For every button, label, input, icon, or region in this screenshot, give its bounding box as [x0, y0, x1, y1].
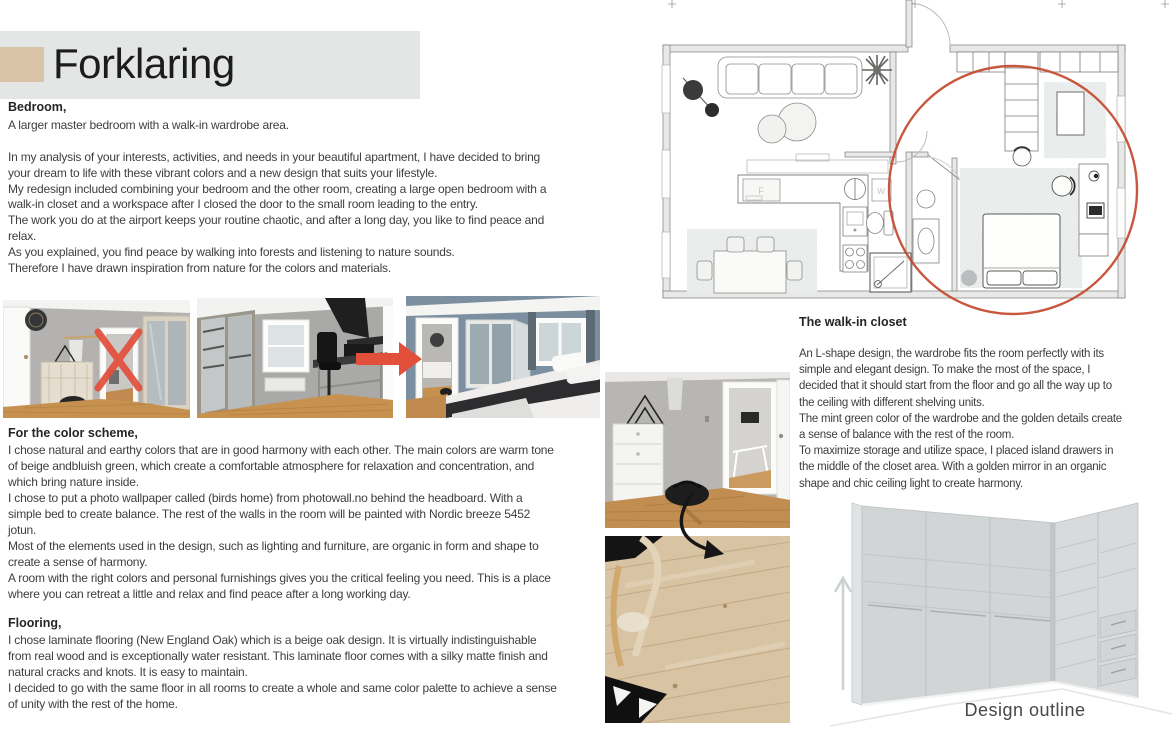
hall-vanity — [913, 190, 939, 263]
page-title: Forklaring — [53, 40, 235, 88]
pendant-lights — [683, 78, 719, 117]
color-scheme-body: I chose natural and earthy colors that a… — [8, 442, 606, 602]
photo-bedroom-after-art — [406, 296, 600, 418]
wardrobe-body — [852, 503, 1138, 705]
floor-plan: F W — [660, 0, 1172, 320]
bedroom-subheading: A larger master bedroom with a walk-in w… — [8, 118, 289, 132]
fridge-label: F — [758, 186, 764, 196]
photo-hallway-before-art — [3, 300, 190, 418]
curved-arrow-icon — [660, 480, 752, 570]
bedroom-heading: Bedroom, — [8, 100, 66, 114]
living-room-furniture — [718, 57, 862, 143]
design-document-page: Forklaring Bedroom, A larger master bedr… — [0, 0, 1172, 736]
bedroom — [960, 164, 1108, 288]
design-outline-caption: Design outline — [925, 700, 1125, 721]
red-arrow-icon — [356, 342, 422, 376]
bedroom-body: In my analysis of your interests, activi… — [8, 150, 606, 276]
color-scheme-heading: For the color scheme, — [8, 426, 138, 440]
washer-label: W — [877, 187, 885, 196]
dining-area — [687, 229, 817, 293]
up-arrow-icon — [835, 578, 851, 690]
walk-in-closet-body: An L-shape design, the wardrobe fits the… — [799, 346, 1172, 492]
accent-square — [0, 47, 44, 82]
flooring-body: I chose laminate flooring (New England O… — [8, 632, 606, 712]
photo-hallway-before — [3, 300, 190, 418]
flooring-heading: Flooring, — [8, 616, 61, 630]
photo-bedroom-after — [406, 296, 600, 418]
walk-in-closet-heading: The walk-in closet — [799, 315, 907, 329]
plant — [862, 55, 892, 85]
